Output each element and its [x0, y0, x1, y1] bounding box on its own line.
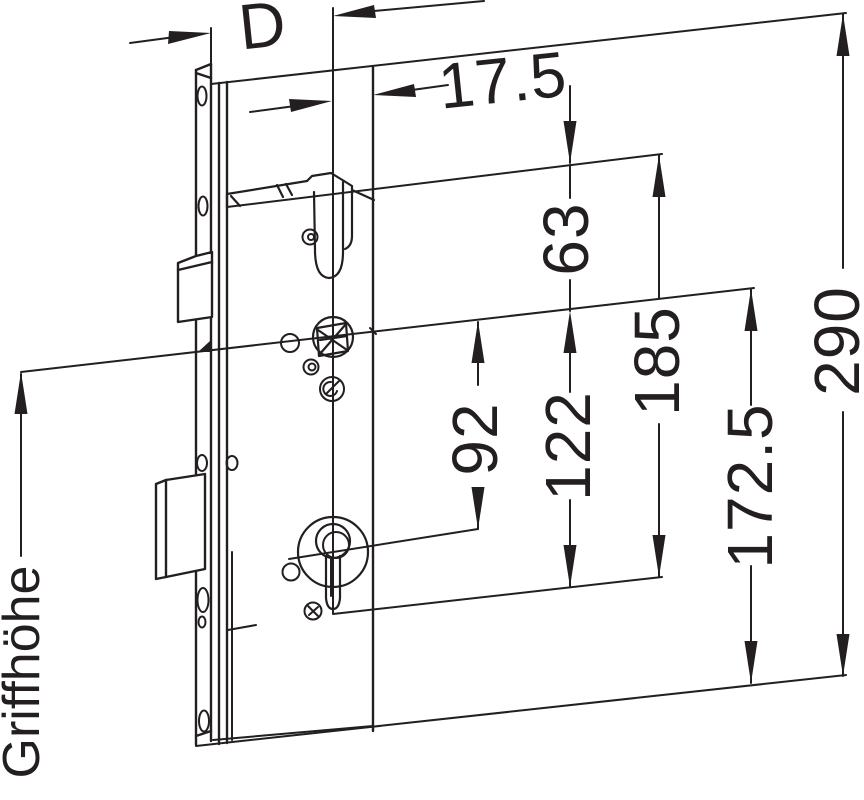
- dim-label-17-5: 17.5: [435, 38, 570, 123]
- drawing-canvas: D 17.5 63 92 122 185 172.5 290 Griffhöhe: [0, 0, 864, 800]
- arrow-d-right: [333, 5, 376, 18]
- dim-label-d: D: [235, 0, 289, 63]
- dim-d-tail-right: [374, 1, 484, 11]
- ref-line-cyl-bottom: [333, 577, 662, 614]
- dim-label-122: 122: [532, 391, 604, 501]
- dim-label-63: 63: [530, 202, 602, 275]
- dim-label-185: 185: [621, 306, 693, 416]
- label-griffhoehe: Griffhöhe: [0, 566, 51, 779]
- lock-dimension-drawing: D 17.5 63 92 122 185 172.5 290 Griffhöhe: [0, 0, 864, 800]
- arrow-290-bottom: [837, 634, 850, 676]
- dim-label-92: 92: [439, 402, 511, 475]
- arrow-63-top: [564, 121, 577, 163]
- dim-label-172-5: 172.5: [714, 403, 786, 568]
- arrow-122-bottom: [564, 545, 577, 587]
- deadbolt-block: [156, 474, 205, 579]
- arrow-92-top: [472, 321, 485, 363]
- case-detail-circles: [281, 334, 344, 620]
- arrow-92-bottom: [472, 487, 485, 529]
- dimension-labels-group: D 17.5 63 92 122 185 172.5 290 Griffhöhe: [0, 0, 864, 778]
- dim-label-290: 290: [801, 286, 864, 396]
- ref-line-bottom: [196, 675, 846, 746]
- arrow-290-top: [837, 14, 850, 56]
- hook-bolt: [227, 173, 374, 278]
- arrow-63-bottom: [564, 311, 577, 353]
- dim-17-5-tail-left: [250, 106, 295, 112]
- arrow-griffhoehe: [15, 372, 28, 414]
- lock-body-group: [196, 64, 376, 745]
- arrow-185-top: [653, 155, 666, 197]
- arrow-17-5-right: [373, 84, 416, 97]
- dimension-lines-group: [21, 1, 846, 746]
- arrow-172-5-top: [745, 289, 758, 331]
- arrow-185-bottom: [653, 535, 666, 577]
- arrow-172-5-bottom: [745, 641, 758, 683]
- bolt-blocks-group: [156, 252, 212, 579]
- faceplate: [196, 64, 211, 745]
- arrow-17-5-left: [289, 99, 332, 112]
- arrowheads-group: [15, 5, 850, 683]
- latch-bevel-mark: [198, 341, 211, 352]
- arrow-d-left: [168, 31, 211, 44]
- lock-case: [213, 67, 376, 744]
- latch-block: [178, 252, 212, 322]
- ref-line-hook-top: [227, 154, 662, 207]
